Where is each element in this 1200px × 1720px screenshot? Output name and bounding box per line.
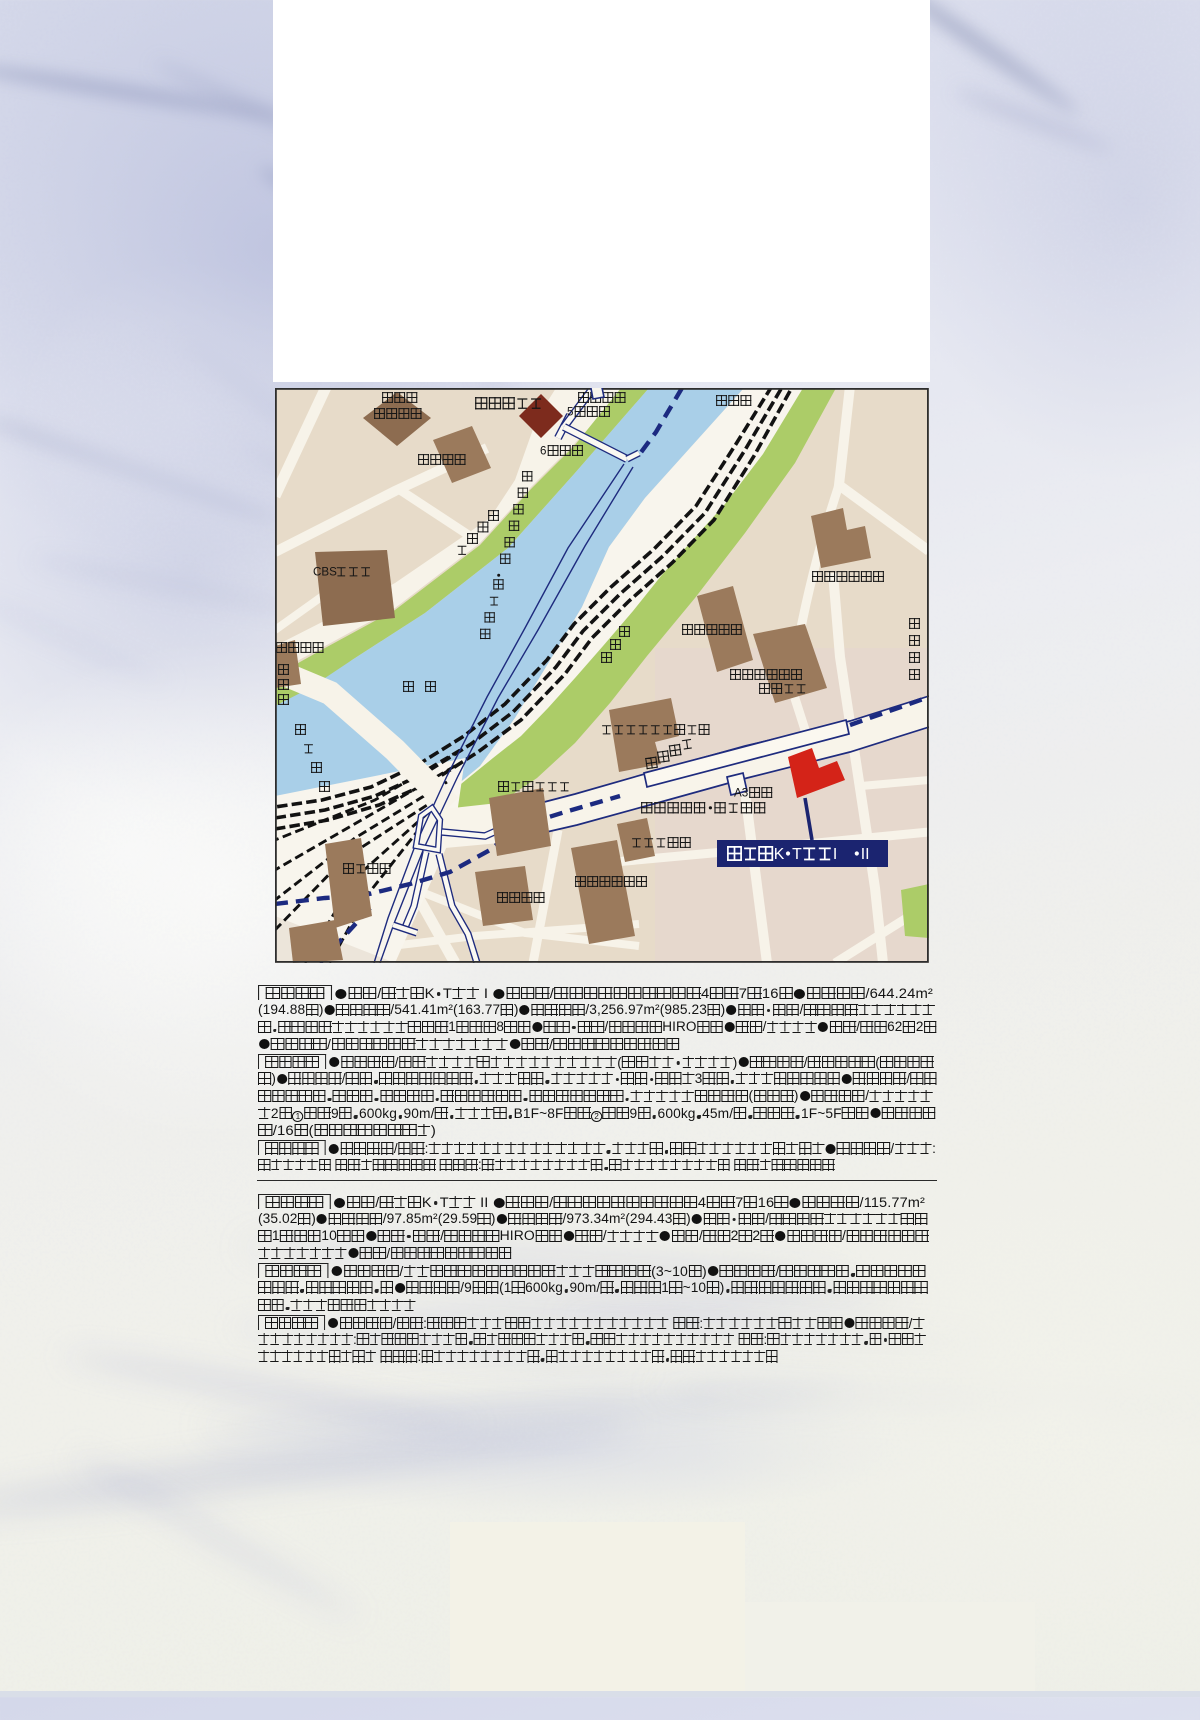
- svg-text:T: T: [792, 846, 802, 863]
- svg-text:CBS: CBS: [313, 566, 337, 579]
- svg-text:II: II: [861, 846, 870, 863]
- svg-text:A3: A3: [734, 787, 748, 800]
- svg-text:5: 5: [567, 406, 573, 419]
- svg-text:I: I: [833, 846, 837, 863]
- svg-text:K: K: [774, 846, 785, 863]
- svg-text:6: 6: [540, 445, 546, 458]
